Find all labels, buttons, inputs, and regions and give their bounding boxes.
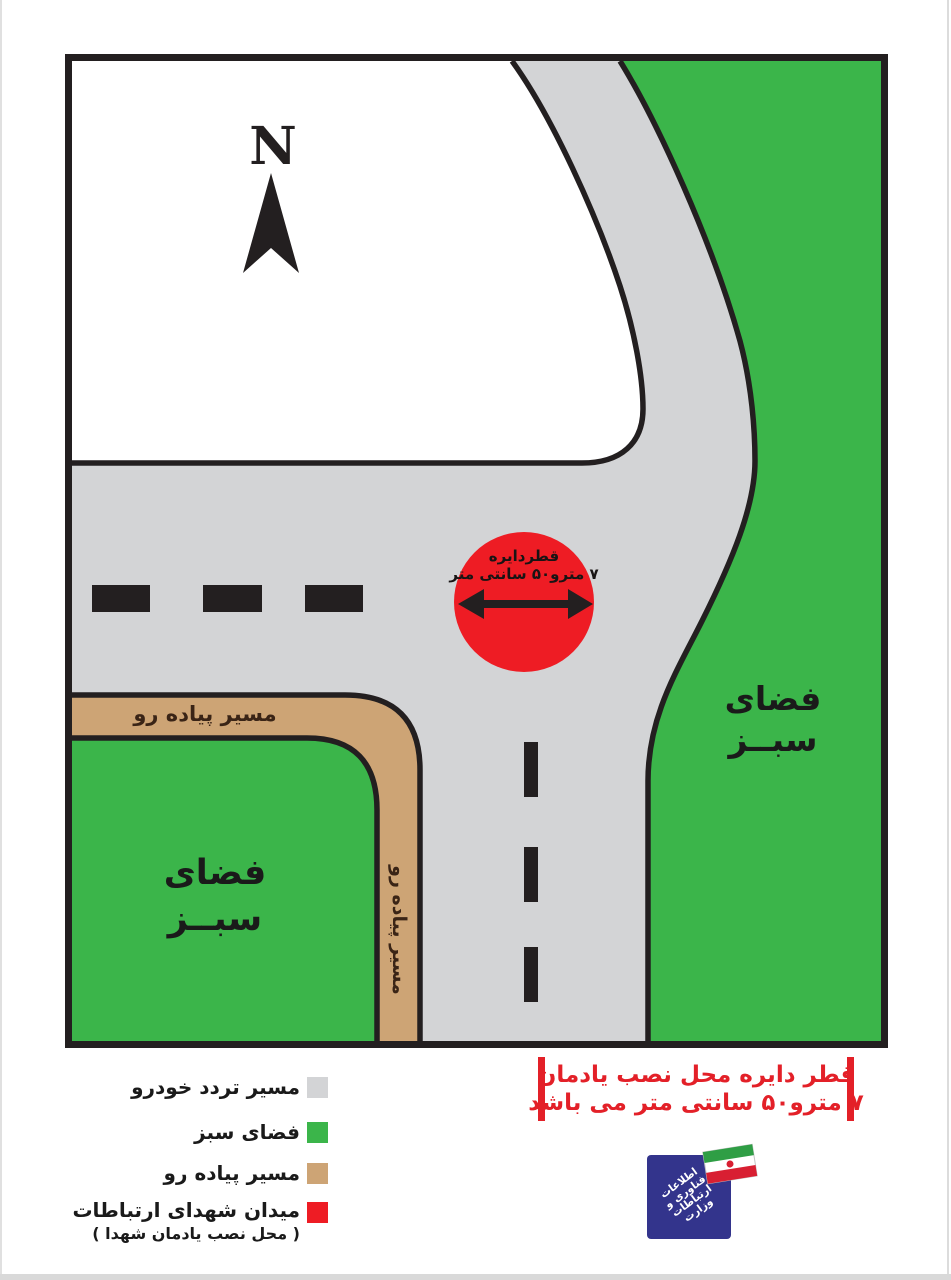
iran-flag-icon — [701, 1143, 759, 1185]
ministry-logo: اطلاعات فناوری و ارتباطات وزارت — [645, 1145, 765, 1245]
green-space-left-label: فضای سبــز — [115, 850, 315, 942]
green-right-line1: فضای — [725, 679, 822, 718]
sidewalk-label-vertical: مسیر پیاده رو — [388, 850, 410, 1010]
sidewalk-label-horizontal: مسیر پیاده رو — [105, 701, 305, 727]
green-left-line1: فضای — [164, 853, 267, 893]
legend-label-square-sub: ( محل نصب یادمان شهدا ) — [92, 1224, 300, 1244]
map-frame: N قطردایره ۷ مترو۵۰ سانتی متر فضای سبــز… — [65, 54, 888, 1048]
legend-swatch-sidewalk — [307, 1163, 328, 1184]
green-left-line2: سبــز — [168, 899, 262, 939]
center-line-horizontal — [92, 585, 363, 612]
circle-label-line2: ۷ مترو۵۰ سانتی متر — [449, 565, 598, 583]
legend-label-sidewalk: مسیر پیاده رو — [164, 1161, 300, 1186]
legend-label-road: مسیر تردد خودرو — [131, 1075, 300, 1100]
note-line2: ۷ مترو۵۰ سانتی متر می باشد — [528, 1089, 864, 1117]
circle-label-line1: قطردایره — [489, 547, 559, 565]
compass-arrow-icon — [243, 173, 299, 273]
center-line-vertical — [524, 742, 538, 1002]
green-right-line2: سبــز — [728, 720, 817, 759]
site-plan-page: N قطردایره ۷ مترو۵۰ سانتی متر فضای سبــز… — [0, 0, 951, 1280]
green-space-right-label: فضای سبــز — [668, 678, 878, 760]
monument-circle-label: قطردایره ۷ مترو۵۰ سانتی متر — [424, 547, 624, 583]
page-edge-bottom — [0, 1274, 951, 1280]
legend-label-green: فضای سبز — [194, 1120, 300, 1145]
legend-swatch-road — [307, 1077, 328, 1098]
page-edge-left — [0, 0, 2, 1280]
note-line1: قطر دایره محل نصب یادمان — [537, 1061, 856, 1089]
diameter-note-box: قطر دایره محل نصب یادمان ۷ مترو۵۰ سانتی … — [538, 1057, 854, 1121]
compass-north-label: N — [223, 121, 323, 173]
page-edge-right — [947, 0, 949, 1280]
legend-label-square: میدان شهدای ارتباطات — [72, 1198, 300, 1223]
legend-swatch-green — [307, 1122, 328, 1143]
legend-swatch-square — [307, 1202, 328, 1223]
